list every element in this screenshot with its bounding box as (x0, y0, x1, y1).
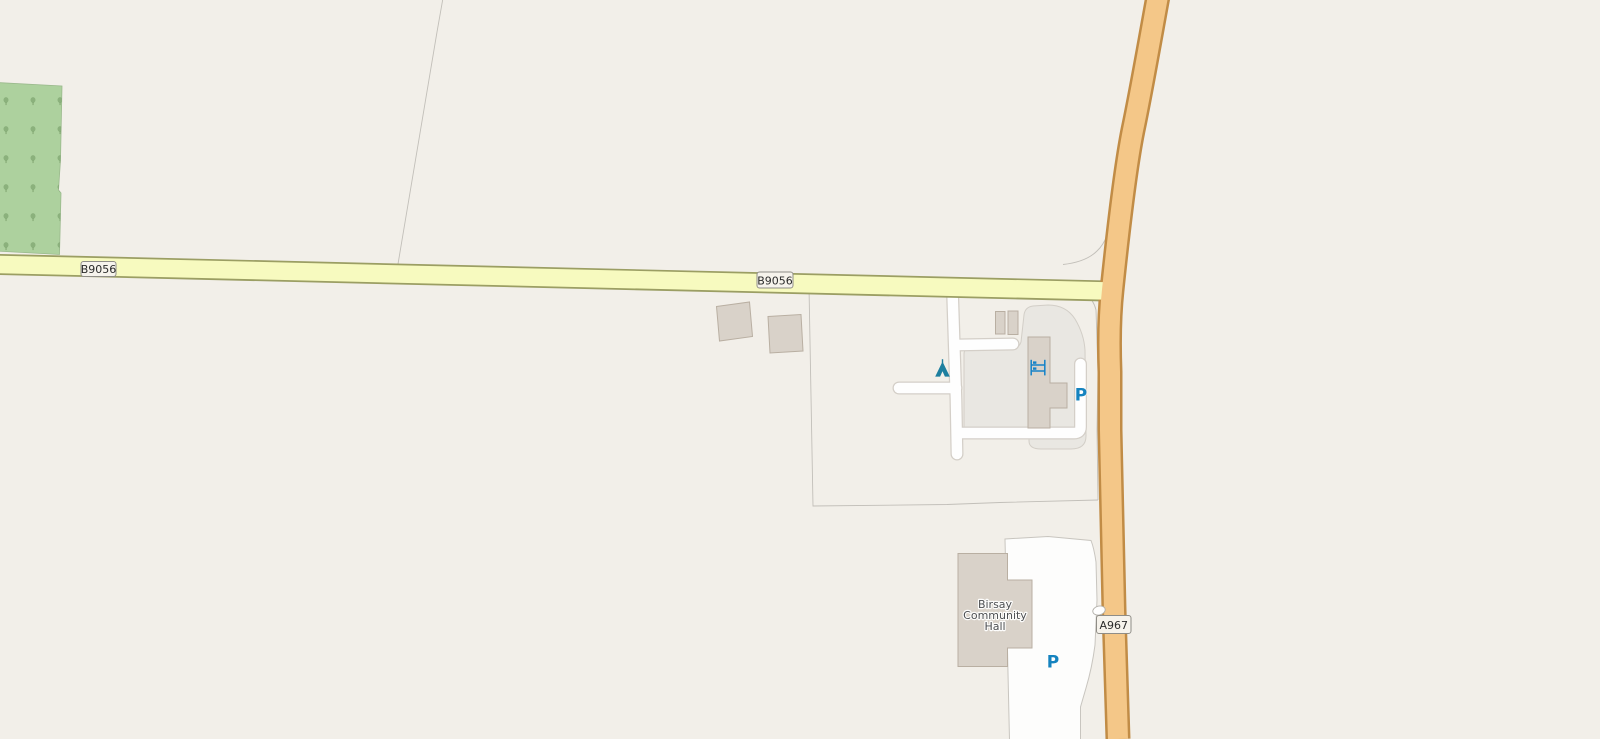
parking-south-icon[interactable]: P (1047, 653, 1059, 673)
forest-tree-pattern (0, 83, 62, 255)
building-west-1 (717, 302, 753, 341)
shield-b9056-east: B9056 (757, 272, 793, 288)
building-small-2 (1008, 311, 1018, 335)
map-background (0, 0, 1600, 739)
hall-label-line3: Hall (984, 620, 1005, 633)
shield-b9056-east-text: B9056 (757, 274, 793, 287)
parking-north-icon[interactable]: P (1075, 386, 1087, 406)
shield-a967: A967 (1097, 616, 1132, 634)
map-svg: B9056 B9056 A967 P P (0, 0, 1600, 739)
building-west-2 (768, 315, 803, 354)
shield-b9056-west-text: B9056 (81, 263, 117, 276)
shield-a967-text: A967 (1100, 619, 1129, 632)
building-small-1 (996, 312, 1006, 335)
map-canvas[interactable]: B9056 B9056 A967 P P (0, 0, 1600, 739)
forest-area (0, 83, 62, 255)
shield-b9056-west: B9056 (81, 262, 117, 277)
